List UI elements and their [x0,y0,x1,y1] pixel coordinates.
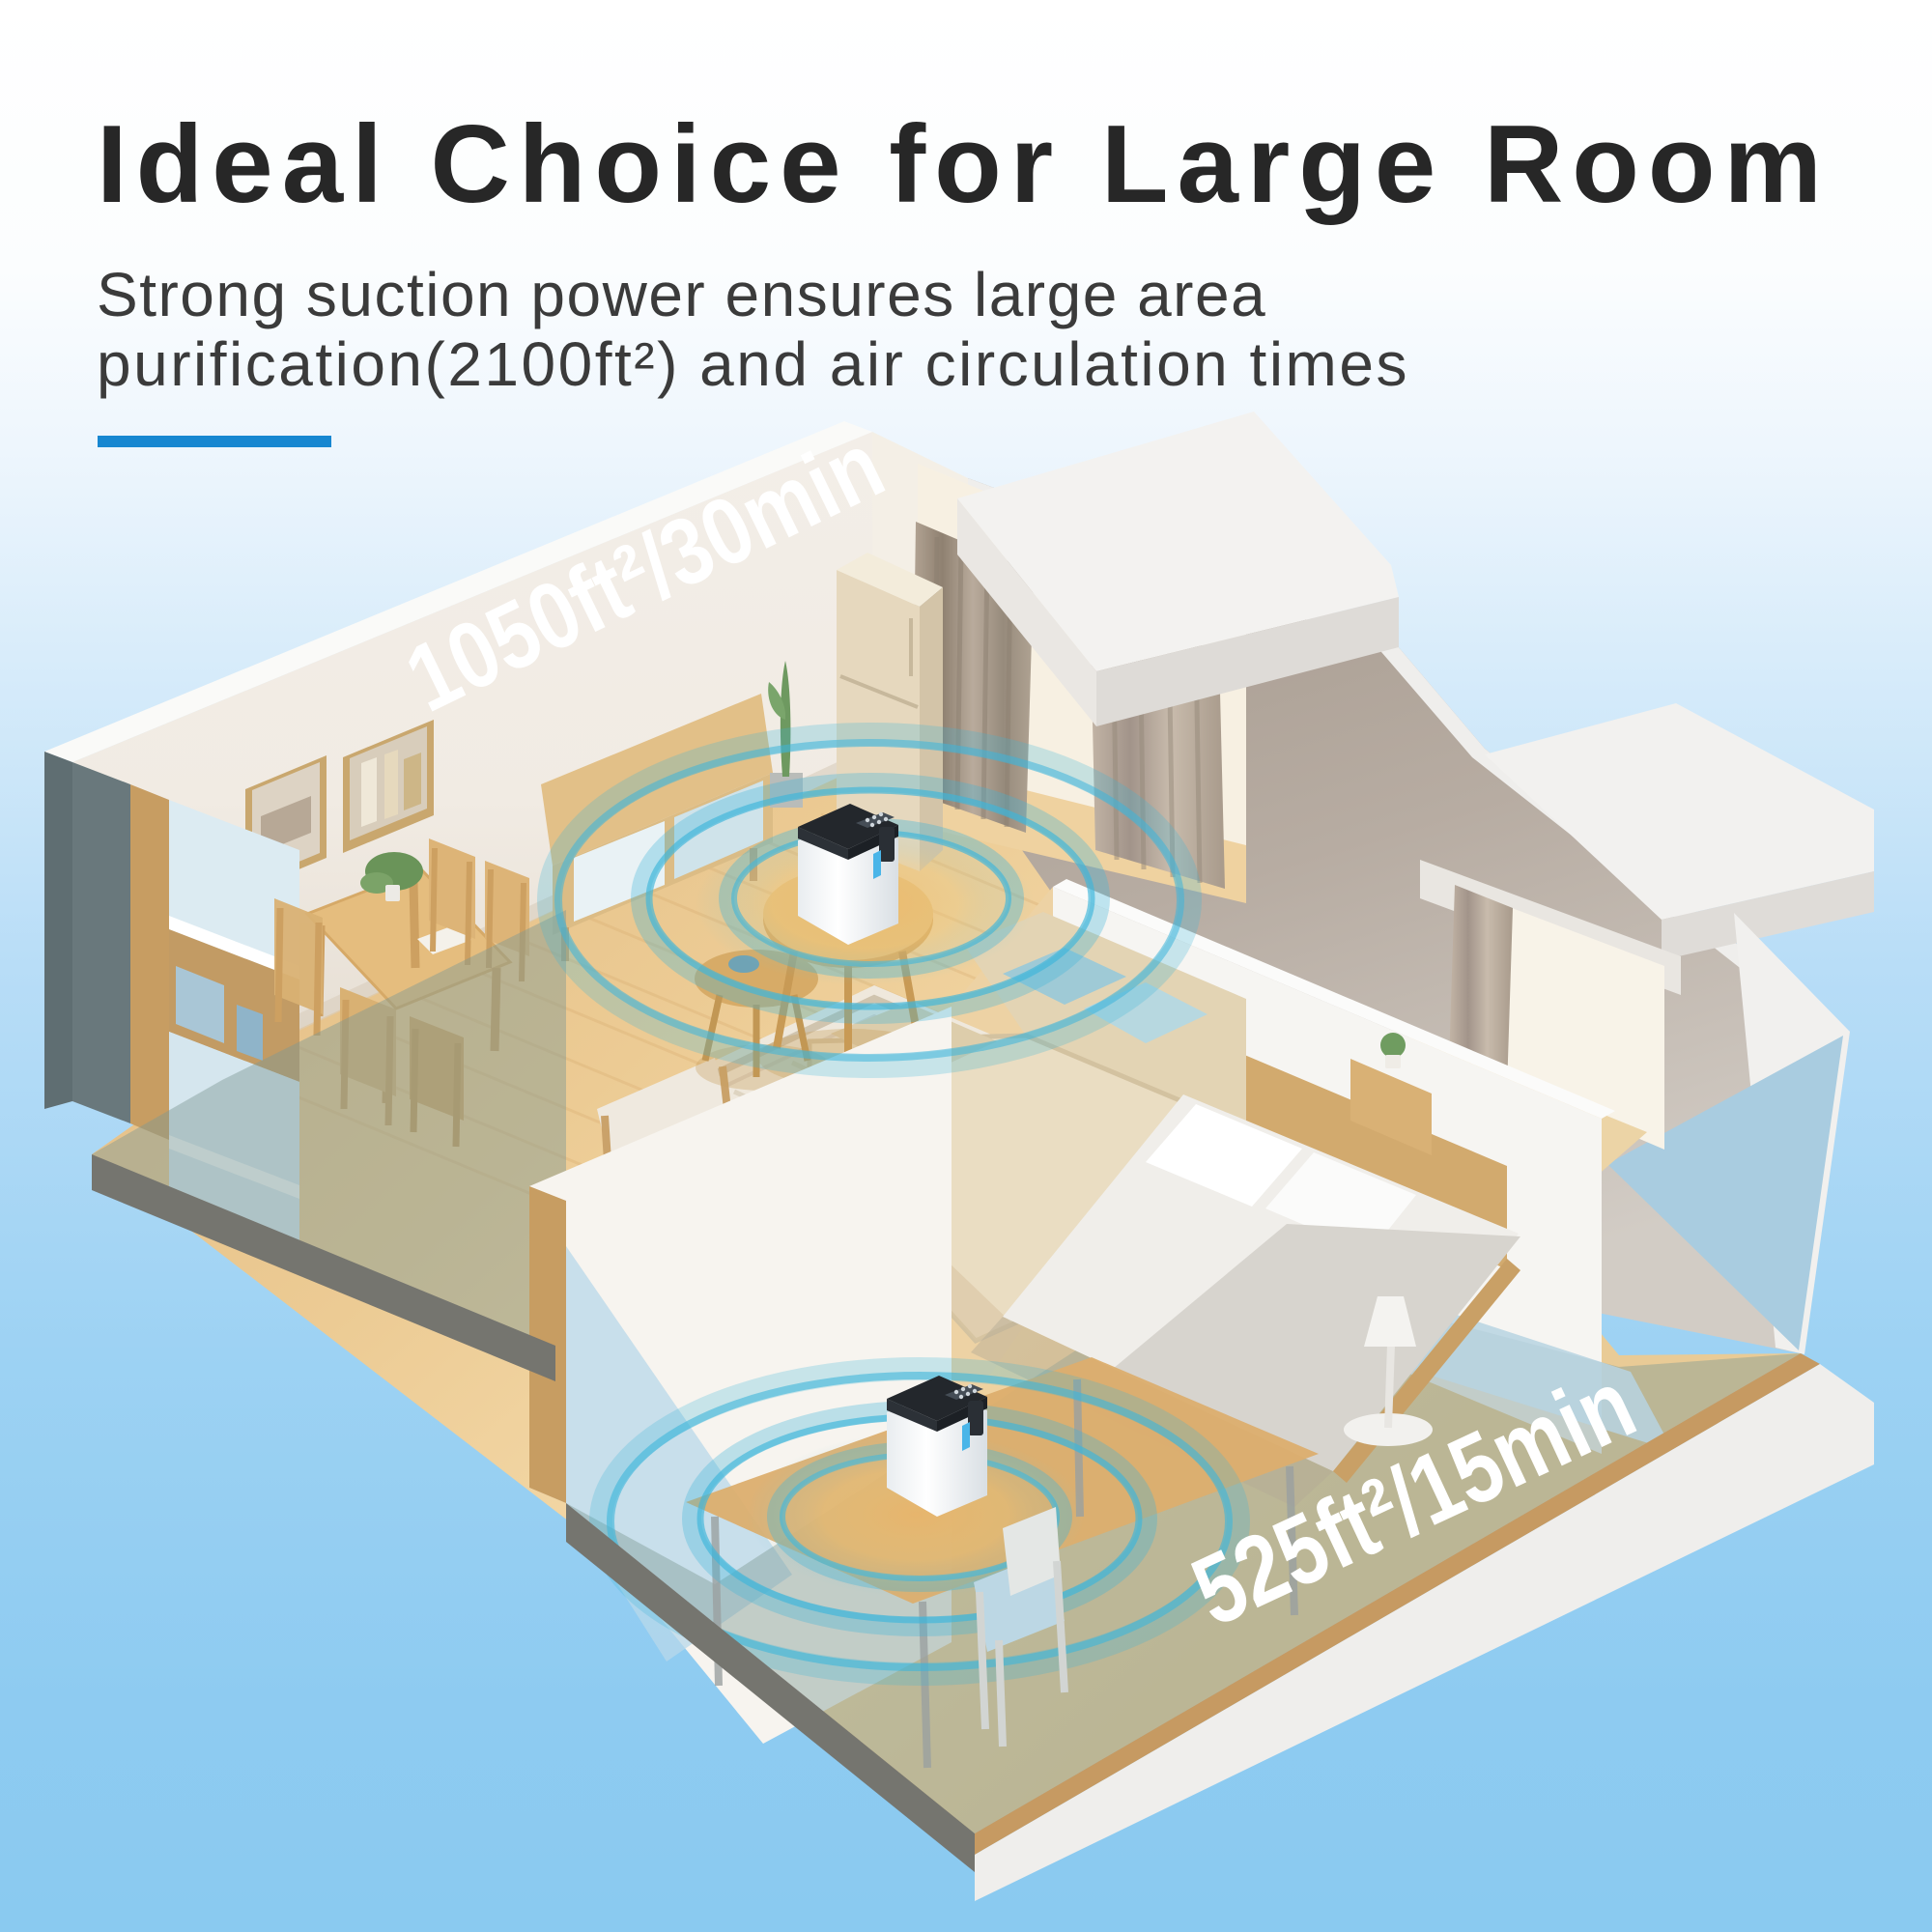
svg-text:purification(2100ft²) and air: purification(2100ft²) and air circulatio… [97,329,1409,399]
svg-text:Strong suction power ensures l: Strong suction power ensures large area [97,260,1266,329]
svg-text:Ideal Choice for Large Room: Ideal Choice for Large Room [97,103,1831,226]
